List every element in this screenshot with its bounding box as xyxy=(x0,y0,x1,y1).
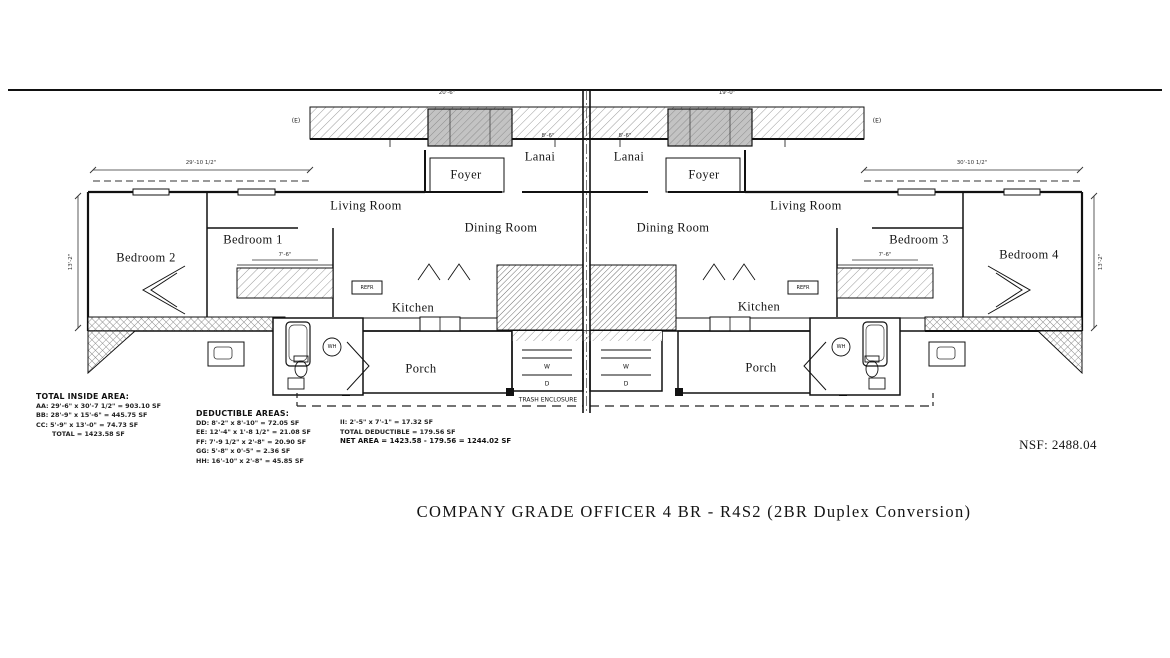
room-label-bedroom4: Bedroom 4 xyxy=(999,248,1059,263)
table-row: FF: 7'-9 1/2" x 2'-8" = 20.90 SF xyxy=(196,438,311,448)
room-label-bedroom3: Bedroom 3 xyxy=(889,233,949,248)
room-label-living-right: Living Room xyxy=(770,199,841,214)
dim-top-left: 20'-6" xyxy=(439,90,456,96)
table-row: BB: 28'-9" x 15'-6" = 445.75 SF xyxy=(36,411,161,421)
room-label-lanai-left: Lanai xyxy=(525,150,555,165)
table-row: CC: 5'-9" x 13'-0" = 74.73 SF xyxy=(36,421,161,431)
dryer-label-left: D xyxy=(545,381,550,388)
table-row: DD: 8'-2" x 8'-10" = 72.05 SF xyxy=(196,419,311,429)
table-row-total: TOTAL = 1423.58 SF xyxy=(52,430,161,440)
room-label-dining-left: Dining Room xyxy=(465,221,538,236)
refrigerator-label-left: REFR xyxy=(361,285,374,291)
drawing-title: COMPANY GRADE OFFICER 4 BR - R4S2 (2BR D… xyxy=(417,502,972,522)
dim-lanai-left: 8'-6" xyxy=(541,133,554,139)
room-label-bedroom2: Bedroom 2 xyxy=(116,251,176,266)
table-row: EE: 12'-4" x 1'-8 1/2" = 21.08 SF xyxy=(196,428,311,438)
room-label-lanai-right: Lanai xyxy=(614,150,644,165)
table-row: AA: 29'-6" x 30'-7 1/2" = 903.10 SF xyxy=(36,402,161,412)
trash-enclosure-label: TRASH ENCLOSURE xyxy=(519,397,577,404)
net-area-row: NET AREA = 1423.58 - 179.56 = 1244.02 SF xyxy=(340,437,511,447)
water-heater-label-left: WH xyxy=(328,344,337,350)
dim-wing-left: 29'-10 1/2" xyxy=(186,160,217,166)
nsf-label: NSF: 2488.04 xyxy=(1019,437,1097,453)
dim-top-right: 19'-0" xyxy=(719,90,736,96)
table-row: HH: 16'-10" x 2'-8" = 45.85 SF xyxy=(196,457,311,467)
room-label-porch-right: Porch xyxy=(745,361,776,376)
existing-mark-right: (E) xyxy=(873,118,881,125)
dryer-label-right: D xyxy=(624,381,629,388)
floorplan-linework xyxy=(0,0,1170,658)
total-inside-area-table: TOTAL INSIDE AREA: AA: 29'-6" x 30'-7 1/… xyxy=(36,392,161,440)
water-heater-label-right: WH xyxy=(837,344,846,350)
room-label-porch-left: Porch xyxy=(405,362,436,377)
room-label-kitchen-left: Kitchen xyxy=(392,301,434,316)
room-label-foyer-left: Foyer xyxy=(450,168,481,183)
dim-closet-right: 7'-6" xyxy=(878,252,891,258)
refrigerator-label-right: REFR xyxy=(797,285,810,291)
deductible-areas-heading: DEDUCTIBLE AREAS: xyxy=(196,409,311,419)
room-label-kitchen-right: Kitchen xyxy=(738,300,780,315)
dim-lanai-right: 8'-6" xyxy=(618,133,631,139)
table-row: II: 2'-5" x 7'-1" = 17.32 SF xyxy=(340,418,511,428)
room-label-bedroom1: Bedroom 1 xyxy=(223,233,283,248)
table-row-total-deductible: TOTAL DEDUCTIBLE = 179.56 SF xyxy=(340,428,511,438)
room-label-living-left: Living Room xyxy=(330,199,401,214)
existing-mark-left: (E) xyxy=(292,118,300,125)
deductible-areas-table: DEDUCTIBLE AREAS: DD: 8'-2" x 8'-10" = 7… xyxy=(196,409,311,467)
dim-side-right: 13'-2" xyxy=(1098,254,1104,271)
dim-side-left: 13'-2" xyxy=(68,254,74,271)
floorplan-sheet: Lanai Lanai Foyer Foyer Living Room Livi… xyxy=(0,0,1170,658)
washer-label-left: W xyxy=(544,364,550,371)
dim-wing-right: 30'-10 1/2" xyxy=(957,160,988,166)
room-label-dining-right: Dining Room xyxy=(637,221,710,236)
room-label-foyer-right: Foyer xyxy=(688,168,719,183)
total-inside-area-heading: TOTAL INSIDE AREA: xyxy=(36,392,161,402)
table-row: GG: 5'-8" x 0'-5" = 2.36 SF xyxy=(196,447,311,457)
washer-label-right: W xyxy=(623,364,629,371)
dim-closet-left: 7'-6" xyxy=(278,252,291,258)
area-summary-block: II: 2'-5" x 7'-1" = 17.32 SF TOTAL DEDUC… xyxy=(340,418,511,447)
